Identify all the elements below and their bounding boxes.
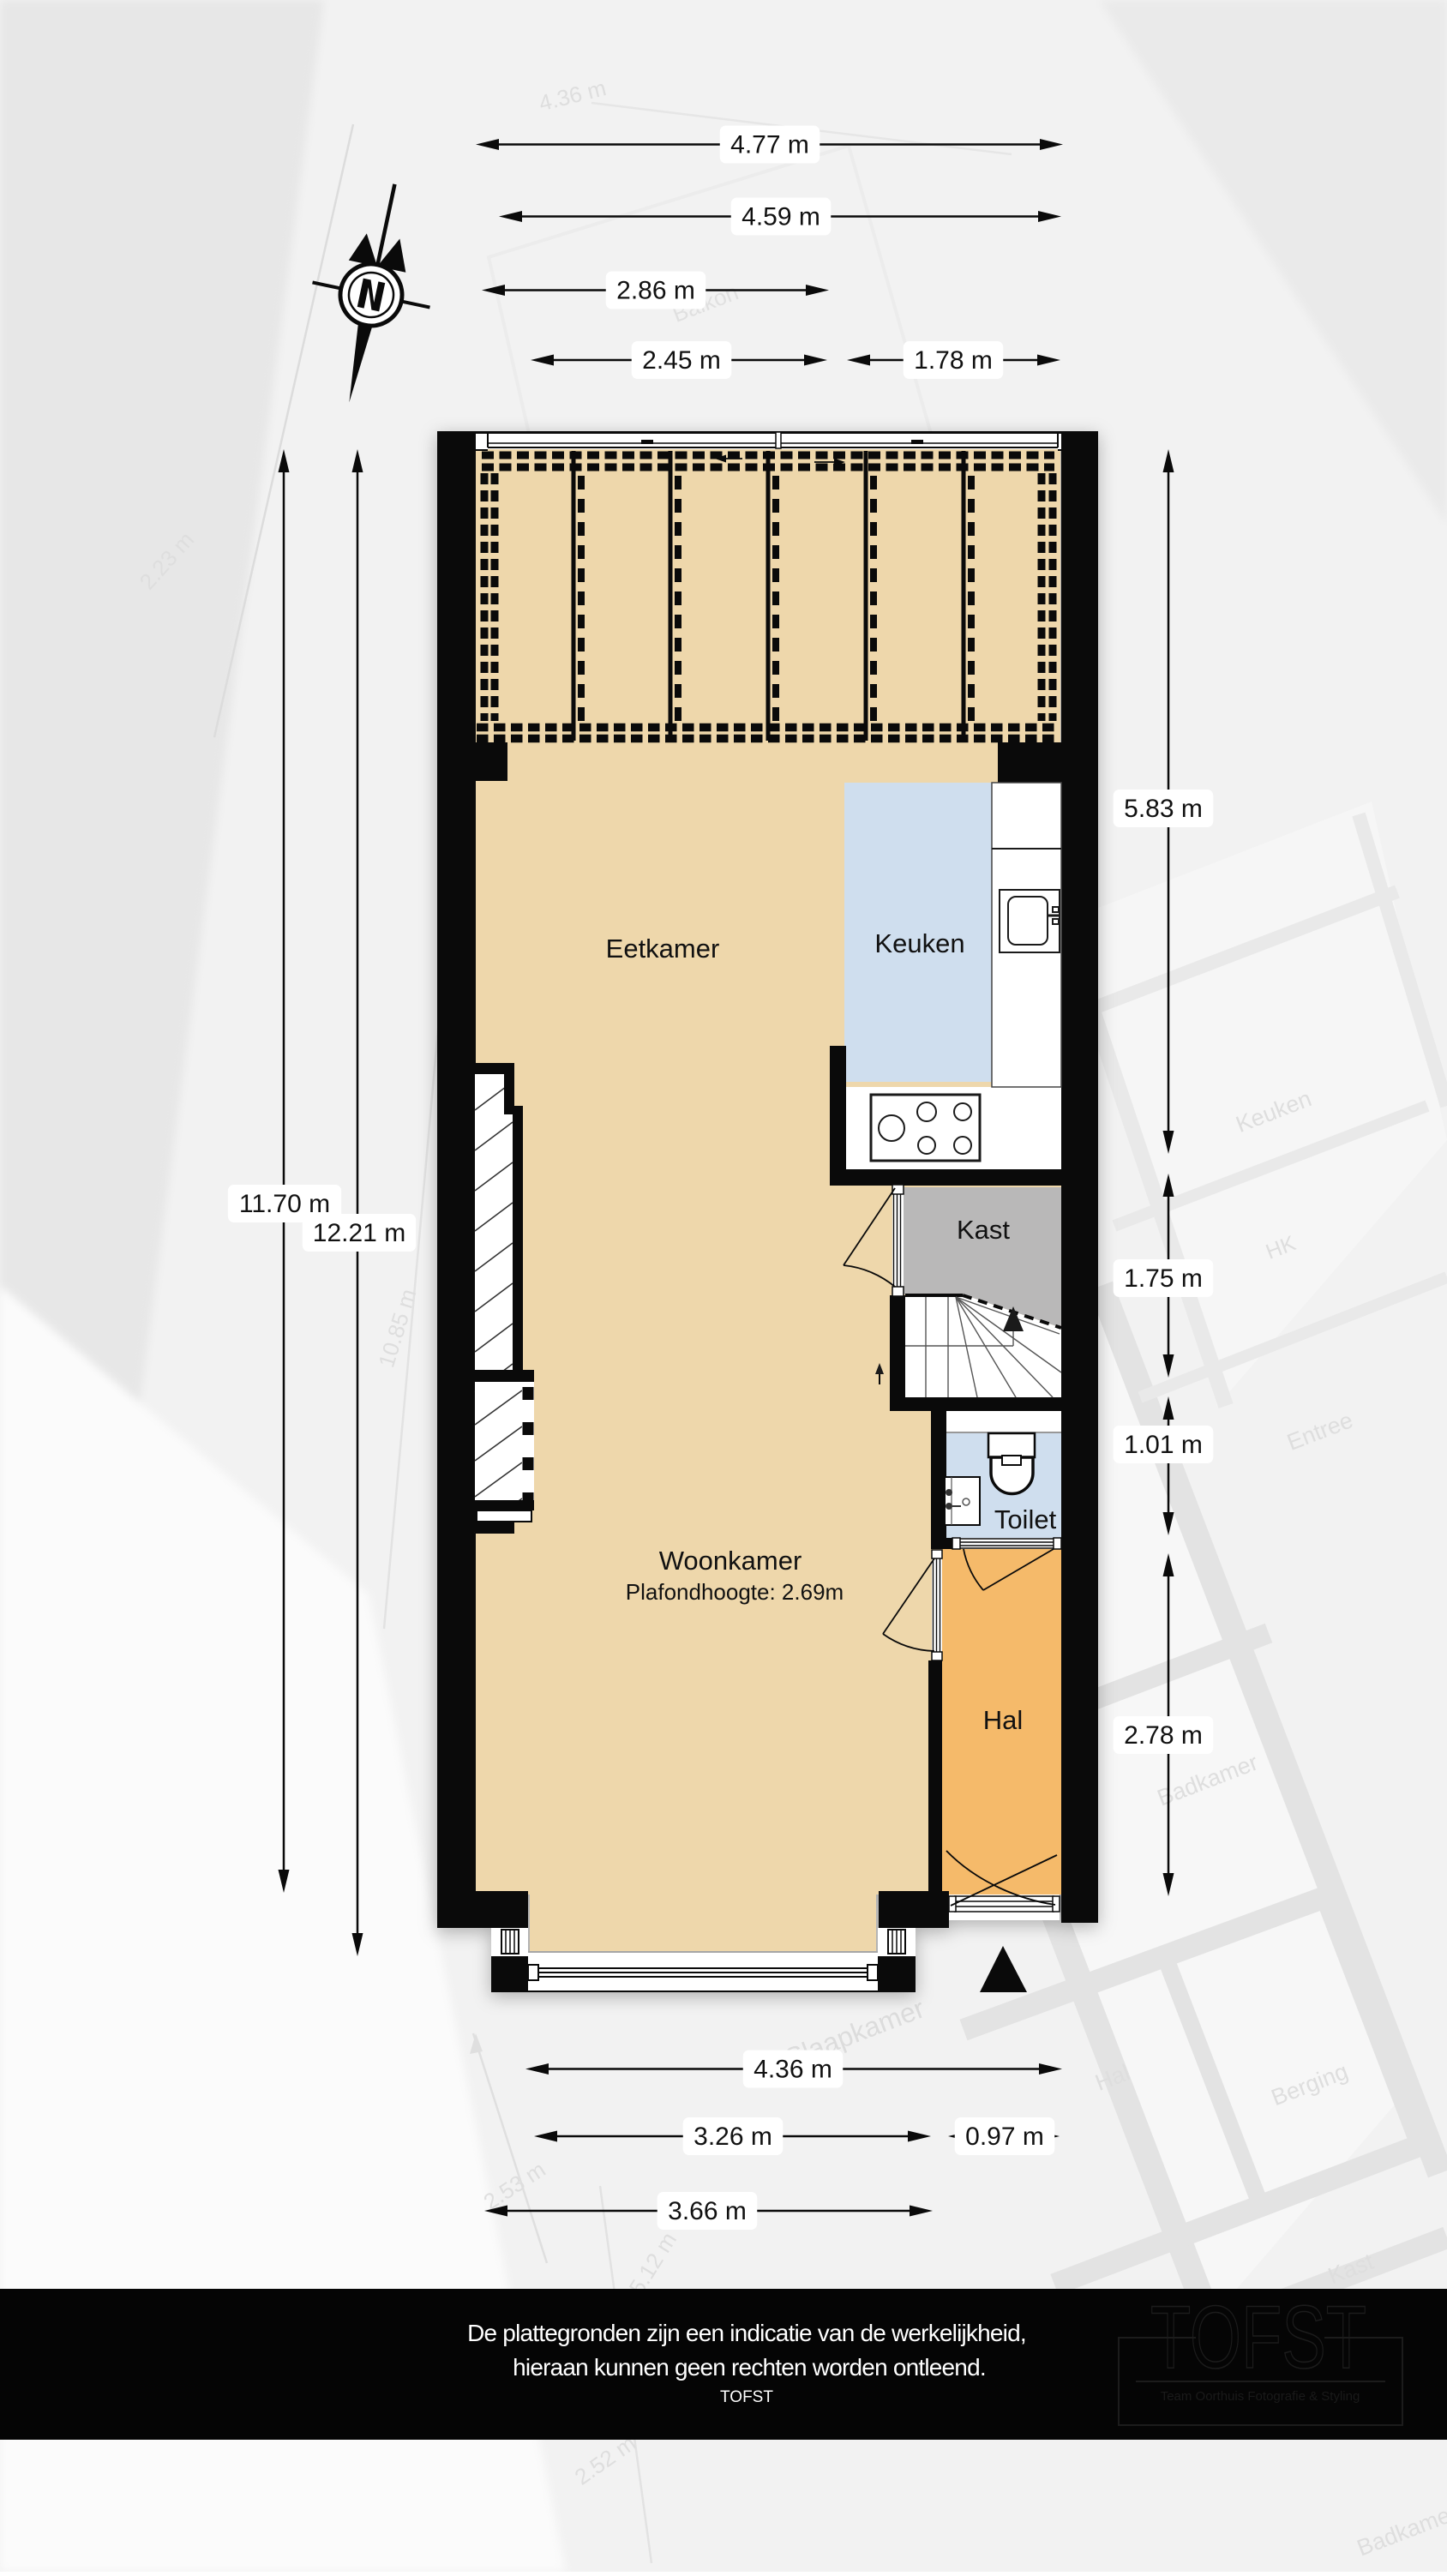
svg-text:1.78 m: 1.78 m — [914, 346, 993, 375]
svg-text:1.01 m: 1.01 m — [1124, 1431, 1203, 1459]
svg-text:TOFST: TOFST — [720, 2388, 773, 2406]
svg-text:4.59 m: 4.59 m — [742, 203, 820, 231]
svg-text:Keuken: Keuken — [874, 928, 964, 958]
svg-text:4.77 m: 4.77 m — [730, 131, 809, 159]
svg-text:Eetkamer: Eetkamer — [606, 934, 720, 964]
svg-text:Team Oorthuis Fotografie & Sty: Team Oorthuis Fotografie & Styling — [1161, 2389, 1360, 2404]
svg-text:0.97 m: 0.97 m — [965, 2123, 1044, 2151]
svg-text:4.36 m: 4.36 m — [754, 2056, 832, 2084]
svg-text:1.75 m: 1.75 m — [1124, 1264, 1203, 1293]
svg-text:Plafondhoogte: 2.69m: Plafondhoogte: 2.69m — [626, 1579, 844, 1605]
svg-text:TOFST: TOFST — [1150, 2288, 1366, 2387]
svg-text:2.86 m: 2.86 m — [616, 277, 695, 305]
svg-text:2.78 m: 2.78 m — [1124, 1721, 1203, 1750]
svg-text:5.83 m: 5.83 m — [1124, 795, 1203, 823]
svg-text:12.21 m: 12.21 m — [313, 1219, 405, 1247]
svg-text:Woonkamer: Woonkamer — [659, 1546, 802, 1576]
svg-text:3.66 m: 3.66 m — [668, 2197, 747, 2225]
svg-text:3.26 m: 3.26 m — [693, 2123, 772, 2151]
svg-text:De plattegronden zijn een indi: De plattegronden zijn een indicatie van … — [467, 2320, 1026, 2346]
svg-text:hieraan kunnen geen rechten wo: hieraan kunnen geen rechten worden ontle… — [513, 2354, 986, 2381]
svg-text:Toilet: Toilet — [994, 1504, 1057, 1534]
svg-text:Kast: Kast — [957, 1215, 1010, 1245]
svg-text:2.45 m: 2.45 m — [642, 346, 721, 375]
svg-text:Hal: Hal — [983, 1705, 1024, 1735]
